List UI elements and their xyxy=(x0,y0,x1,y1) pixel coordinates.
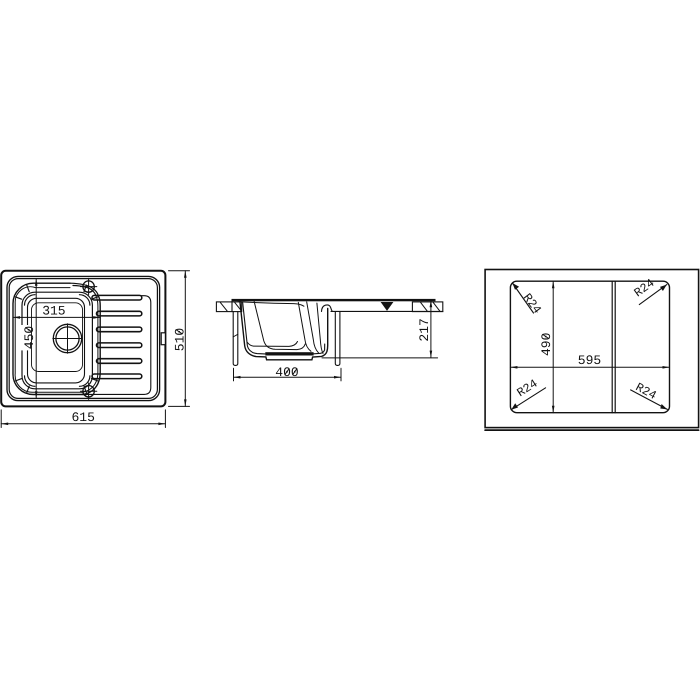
svg-text:R24: R24 xyxy=(632,276,658,300)
svg-text:217: 217 xyxy=(417,318,432,341)
svg-text:490: 490 xyxy=(539,333,554,356)
svg-text:595: 595 xyxy=(578,353,601,368)
svg-text:R24: R24 xyxy=(520,291,544,317)
svg-text:R24: R24 xyxy=(515,377,541,401)
svg-text:510: 510 xyxy=(172,328,187,351)
svg-text:R24: R24 xyxy=(633,380,659,403)
svg-text:450: 450 xyxy=(22,326,37,349)
svg-text:615: 615 xyxy=(72,410,95,425)
svg-text:315: 315 xyxy=(42,304,65,319)
